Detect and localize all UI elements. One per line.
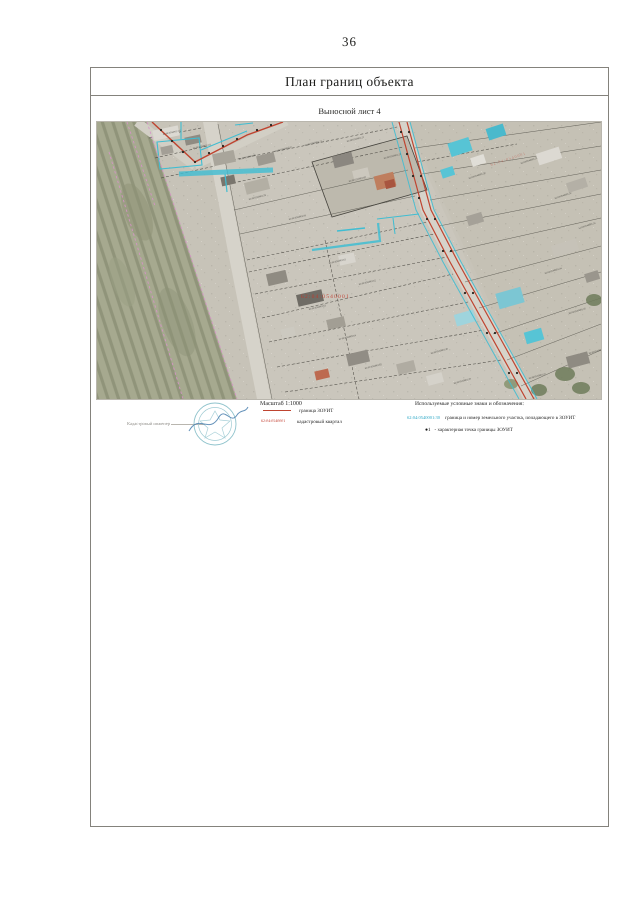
legend-item-cadastral-quarter: 62:04:0540001кадастровый квартал (261, 418, 342, 425)
cyan-text-swatch: 62:04:0540001:30 (407, 415, 440, 420)
page-number: 36 (90, 34, 609, 50)
stamp-seal (187, 399, 249, 453)
document-page: 36 План границ объекта Выносной лист 4 (0, 0, 640, 905)
legend-item-parcel-in-zouit: 62:04:0540001:30граница и номер земельно… (407, 415, 575, 421)
cadastral-map: 62:04:0540001 62:04:0540001 62:04:054000… (97, 122, 601, 399)
map-image: 62:04:0540001 62:04:0540001 62:04:054000… (97, 122, 601, 399)
legend: Кадастровый инженер Масштаб 1:1000 грани… (91, 399, 608, 463)
red-text-swatch: 62:04:0540001 (261, 418, 289, 423)
point-marker: ●1 (425, 428, 431, 433)
plan-frame: План границ объекта Выносной лист 4 (90, 67, 609, 827)
legend-item-zouit-boundary: граница ЗОУИТ (263, 409, 333, 414)
signature (189, 407, 248, 431)
scale-label: Масштаб 1:1000 (260, 401, 302, 407)
legend-item-characteristic-point: ●1- характерная точка границы ЗОУИТ (425, 428, 513, 433)
cadastral-quarter-label: 62:04:0540001 (301, 294, 350, 300)
red-line-swatch (263, 410, 291, 411)
plan-title: План границ объекта (91, 68, 608, 96)
legend-right-header: Используемые условные знаки и обозначени… (415, 401, 524, 407)
sheet-label: Выносной лист 4 (91, 106, 608, 116)
